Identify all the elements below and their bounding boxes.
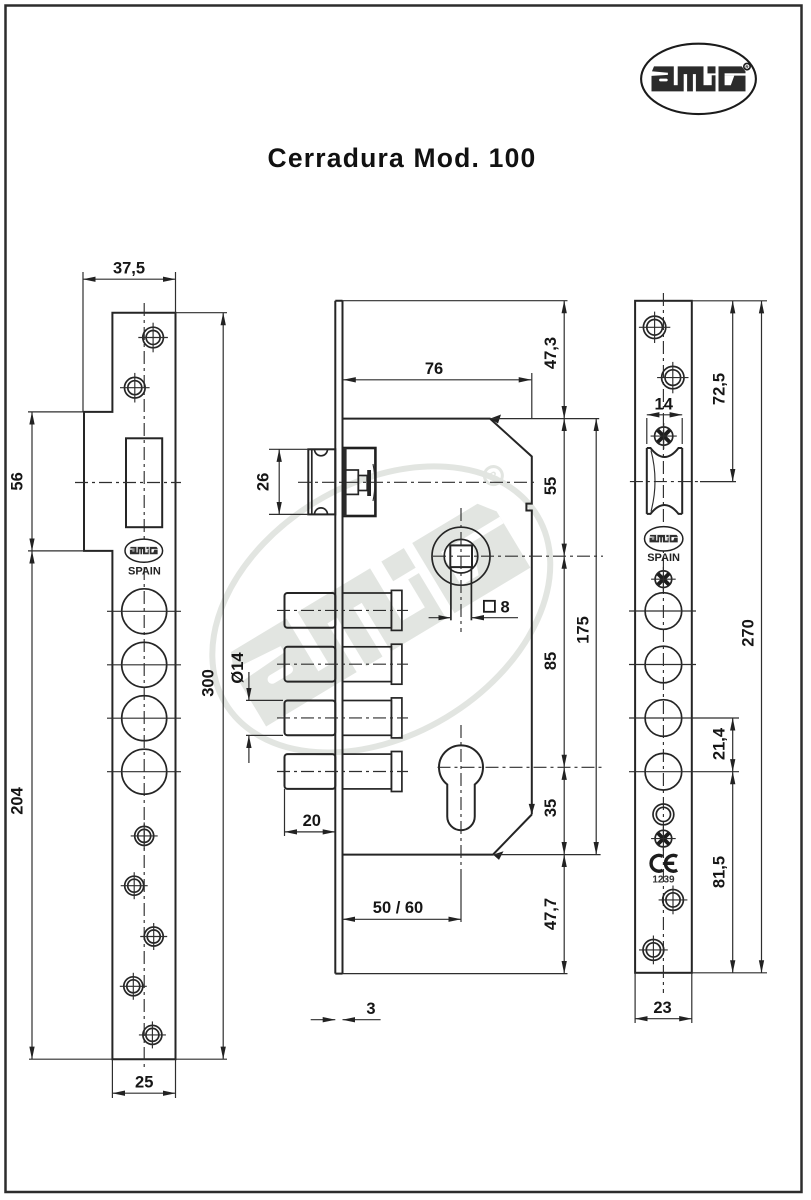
svg-text:26: 26 [255, 473, 273, 491]
svg-text:204: 204 [9, 786, 27, 814]
svg-text:175: 175 [575, 616, 593, 644]
svg-text:Cerradura Mod. 100: Cerradura Mod. 100 [267, 143, 536, 173]
svg-text:3: 3 [366, 1000, 375, 1018]
svg-text:50 / 60: 50 / 60 [373, 899, 423, 917]
svg-text:SPAIN: SPAIN [128, 565, 161, 577]
svg-text:Ø14: Ø14 [229, 652, 247, 684]
svg-text:72,5: 72,5 [711, 373, 729, 405]
svg-text:76: 76 [425, 360, 443, 378]
svg-text:47,7: 47,7 [542, 898, 560, 930]
svg-text:21,4: 21,4 [711, 727, 729, 760]
svg-text:14: 14 [655, 396, 674, 414]
svg-text:37,5: 37,5 [113, 260, 145, 278]
svg-text:85: 85 [542, 652, 560, 670]
svg-text:23: 23 [653, 999, 671, 1017]
svg-text:SPAIN: SPAIN [647, 552, 680, 564]
svg-text:55: 55 [542, 477, 560, 495]
svg-text:1239: 1239 [652, 875, 675, 886]
svg-text:47,3: 47,3 [542, 337, 560, 369]
svg-text:300: 300 [200, 669, 218, 697]
svg-text:8: 8 [501, 599, 510, 617]
svg-text:35: 35 [542, 799, 560, 817]
svg-text:81,5: 81,5 [711, 856, 729, 888]
svg-text:20: 20 [303, 812, 321, 830]
svg-text:270: 270 [740, 619, 758, 647]
svg-text:56: 56 [9, 472, 27, 490]
svg-text:25: 25 [135, 1074, 153, 1092]
